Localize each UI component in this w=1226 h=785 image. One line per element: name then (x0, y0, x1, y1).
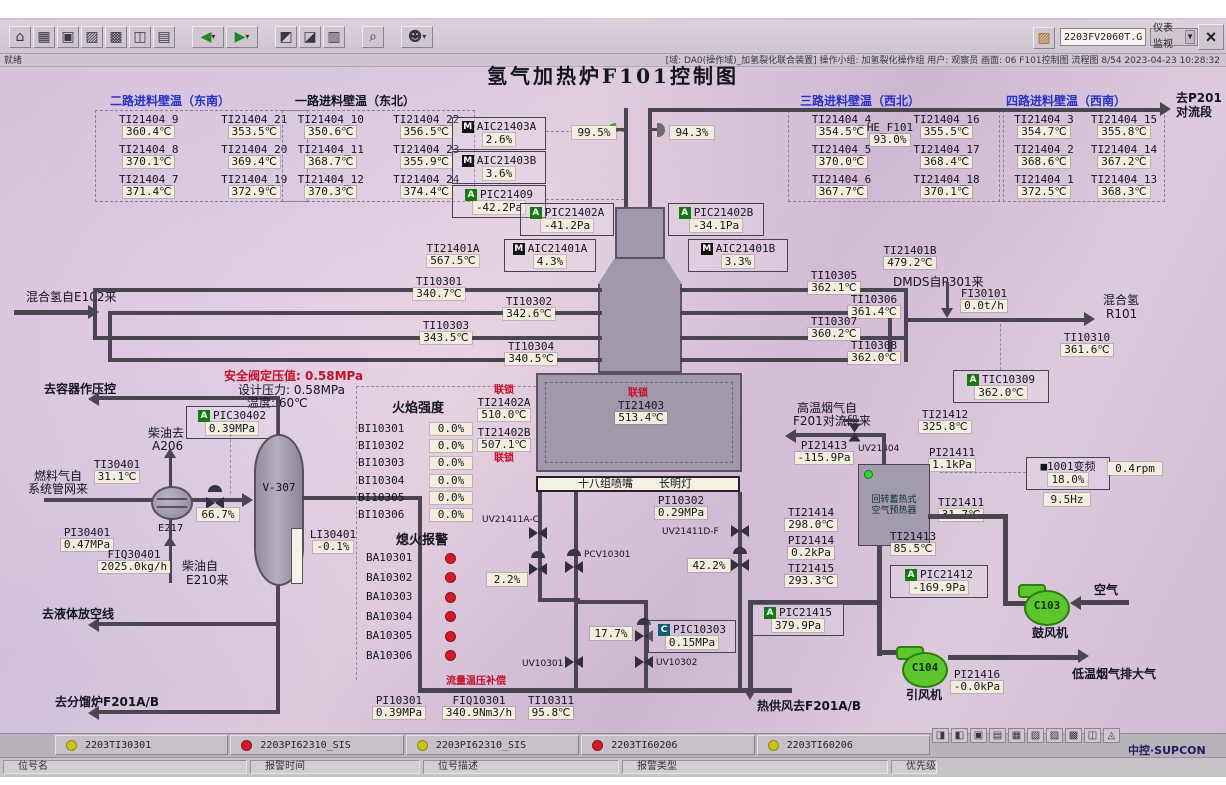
mode-badge: A (679, 207, 691, 219)
pipe (14, 310, 90, 315)
burner-groups-label: 十八组喷嘴 (578, 478, 633, 490)
tag-label: BA10305 (366, 630, 412, 642)
flame-title: 火焰强度 (392, 402, 444, 415)
value: 2025.0kg/h (98, 561, 170, 573)
value: 372.9℃ (229, 186, 280, 198)
pipe (1003, 514, 1008, 606)
value: 370.3℃ (305, 186, 356, 198)
value: 354.7℃ (1018, 126, 1069, 138)
temp-indicator[interactable]: TI21404_8370.1℃ (96, 144, 202, 168)
value: 374.4℃ (401, 186, 452, 198)
tray-button[interactable]: ▣ (970, 728, 987, 743)
value: 510.0℃ (478, 409, 529, 421)
air-label: 空气 (1094, 584, 1118, 597)
valve-bar (843, 419, 859, 422)
TI21401A-indicator[interactable]: TI21401A567.5℃ (418, 243, 488, 267)
alarm-dot (445, 553, 456, 564)
field-label: 报警时间 (250, 760, 420, 774)
valve-actuator (733, 547, 747, 554)
TI21412-indicator[interactable]: TI21412325.8℃ (914, 409, 976, 433)
temp-indicator[interactable]: TI21404_1372.5℃ (1004, 174, 1084, 198)
to-vessel-label: 去容器作压控 (44, 383, 116, 396)
vfd-speed[interactable]: 0.4rpm (1108, 462, 1162, 475)
toolbar-button[interactable]: ◀ (192, 26, 224, 48)
value: 367.7℃ (816, 186, 867, 198)
tag-label: PIC21415 (779, 606, 832, 619)
flame-indicator[interactable]: BI103060.0% (358, 509, 472, 521)
valve-position-42.2[interactable]: 42.2% (688, 559, 730, 572)
pipe (904, 318, 1086, 322)
TI21414-indicator[interactable]: TI21414298.0℃ (780, 507, 842, 531)
valve-position-2.2[interactable]: 2.2% (487, 573, 527, 586)
PCV10301-label: PCV10301 (584, 550, 631, 560)
AIC21403B-controller[interactable]: MAIC21403B3.6% (452, 151, 546, 184)
UV21411D-F-valve[interactable] (731, 522, 749, 541)
value: 293.3℃ (785, 575, 836, 587)
alarm-priority-dot (592, 740, 603, 751)
TI21401B-indicator[interactable]: TI21401B479.2℃ (875, 245, 945, 269)
pipe (680, 288, 908, 292)
interlock-label: 联锁 (628, 388, 648, 399)
flame-indicator[interactable]: BI103050.0% (358, 492, 472, 504)
pipe (418, 688, 792, 693)
value: 507.1℃ (478, 439, 529, 451)
flame-indicator[interactable]: BI103010.0% (358, 423, 472, 435)
alarm-cells: 2203TI303012203PI62310_SIS2203PI62310_SI… (55, 735, 930, 755)
PIC21402A-controller[interactable]: APIC21402A-41.2Pa (520, 203, 614, 236)
toolbar-button[interactable]: ▥ (323, 26, 345, 48)
tag-label: AIC21401B (716, 242, 776, 255)
value: 370.0℃ (816, 156, 867, 168)
tag-label: PIC21402B (694, 206, 754, 219)
E217-exchanger[interactable] (151, 486, 193, 520)
value: 0.15MPa (666, 636, 718, 649)
flow-arrow (941, 308, 953, 318)
toolbar-button[interactable]: ◪ (299, 26, 321, 48)
PIC10303-controller[interactable]: CPIC103030.15MPa (648, 620, 736, 653)
AIC21403A-controller[interactable]: MAIC21403A2.6% (452, 117, 546, 150)
fan-tag: C104 (902, 662, 948, 674)
fuel-control-valve-2[interactable] (529, 560, 547, 579)
alarm-dot (445, 650, 456, 661)
supcon-logo: 中控·SUPCON (1128, 745, 1206, 757)
mode-badge: A (465, 189, 477, 201)
tray-button[interactable]: ◨ (932, 728, 949, 743)
alarm-dot (445, 631, 456, 642)
dcs-screen: ⌂▦▣▨▩◫▤◀▶◩◪▥⌕☻ ▨ 仪表监视▼ × 就绪 [域: DA0(操作域)… (0, 0, 1226, 785)
signal-line (940, 472, 1026, 473)
field-label: 报警类型 (622, 760, 888, 774)
flameout-alarm[interactable]: BA10306 (366, 650, 462, 662)
TI21402B-indicator[interactable]: TI21402B507.1℃ (473, 427, 535, 451)
TI10308-indicator[interactable]: TI10308362.0℃ (843, 340, 905, 364)
PIC21412-controller[interactable]: APIC21412-169.9Pa (890, 565, 988, 598)
tag-label: PIC21412 (920, 568, 973, 581)
tray-button[interactable]: ▧ (1027, 728, 1044, 743)
furnace-stack (615, 207, 665, 259)
value: -34.1Pa (690, 219, 742, 232)
exchanger-line (157, 498, 187, 500)
temp-indicator[interactable]: TI21404_6367.7℃ (789, 174, 894, 198)
tag-label: PIC30402 (213, 409, 266, 422)
tag-label: AIC21401A (528, 242, 588, 255)
value: 370.1℃ (123, 156, 174, 168)
alarm-cell[interactable]: 2203TI60206 (757, 735, 930, 755)
damper-position-99[interactable]: 99.5% (572, 126, 616, 139)
TI21413-indicator[interactable]: TI2141385.5℃ (884, 531, 942, 555)
h2-outlet-label2: R101 (1106, 308, 1137, 321)
temp-indicator[interactable]: TI21404_12370.3℃ (283, 174, 379, 198)
tray-button[interactable]: ▦ (1008, 728, 1025, 743)
value: 360.4℃ (123, 126, 174, 138)
LI30401-indicator[interactable]: LI30401-0.1% (304, 529, 362, 553)
tag-label: BI10304 (358, 475, 404, 487)
valve-position-66[interactable]: 66.7% (197, 508, 239, 521)
burner-bar: 十八组喷嘴长明灯 (536, 476, 740, 492)
value: 0.0% (430, 457, 472, 469)
flameout-alarm[interactable]: BA10303 (366, 591, 462, 603)
value: 361.6℃ (1061, 344, 1112, 356)
TI21402A-indicator[interactable]: TI21402A510.0℃ (473, 397, 535, 421)
TI30401-indicator[interactable]: TI3040131.1℃ (86, 459, 148, 483)
interlock-zone (356, 386, 357, 680)
value: 325.8℃ (919, 421, 970, 433)
temp-indicator[interactable]: TI21404_7371.4℃ (96, 174, 202, 198)
mode-badge: A (530, 207, 542, 219)
vfd-label: ■1001变频 (1040, 460, 1095, 473)
TI10305-indicator[interactable]: TI10305362.1℃ (803, 270, 865, 294)
preheater-label2: 空气预热器 (871, 506, 916, 516)
value: 18.0% (1048, 473, 1087, 486)
value: 95.8℃ (529, 707, 574, 719)
value: 0.0% (430, 475, 472, 487)
temp-indicator[interactable]: TI21404_18370.1℃ (894, 174, 999, 198)
alarm-priority-dot (241, 740, 252, 751)
temp-indicator[interactable]: TI21404_15355.8℃ (1084, 114, 1164, 138)
TI10301-indicator[interactable]: TI10301340.7℃ (408, 276, 470, 300)
flow-arrow (744, 690, 756, 700)
toolbar-button[interactable]: ▩ (105, 26, 127, 48)
value: 298.0℃ (785, 519, 836, 531)
HE_F101-indicator[interactable]: HE_F10193.0% (848, 122, 932, 146)
value: 2.6% (483, 133, 516, 146)
UV10301-label: UV10301 (522, 659, 563, 669)
mode-badge: M (462, 121, 474, 133)
signal-line (230, 434, 231, 494)
pipe (882, 433, 886, 466)
table3-title: 三路进料壁温（西北） (800, 95, 920, 108)
value: 4.3% (534, 255, 567, 268)
FI30101-indicator[interactable]: FI301010.0t/h (953, 288, 1015, 312)
toolbar-button[interactable]: ▤ (153, 26, 175, 48)
alarm-cell[interactable]: 2203PI62310_SIS (406, 735, 579, 755)
pipe (538, 492, 542, 602)
page-title: 氢气加热炉F101控制图 (0, 64, 1226, 88)
mode-badge: A (764, 607, 776, 619)
pipe (793, 433, 885, 437)
alarm-tag: 2203TI60206 (787, 740, 853, 751)
toolbar-button[interactable]: ⌕ (362, 26, 384, 48)
cold-flue-label: 低温烟气排大气 (1072, 668, 1156, 681)
value: -169.9Pa (910, 581, 969, 594)
temp-indicator[interactable]: TI21404_2368.6℃ (1004, 144, 1084, 168)
flameout-alarm[interactable]: BA10301 (366, 552, 462, 564)
to-p201-label: 去P201 (1176, 92, 1222, 105)
value: 368.3℃ (1098, 186, 1149, 198)
AIC21401B-controller[interactable]: MAIC21401B3.3% (688, 239, 788, 272)
TI21403-indicator[interactable]: TI21403513.4℃ (608, 400, 674, 424)
TI10311-indicator[interactable]: TI1031195.8℃ (522, 695, 580, 719)
alarm-priority-dot (66, 740, 77, 751)
PCV10301-valve[interactable] (565, 558, 583, 577)
value: 0.0t/h (961, 300, 1007, 312)
flow-arrow (164, 448, 176, 458)
pipe (624, 108, 628, 207)
alarm-tag: 2203PI62310_SIS (436, 740, 526, 751)
mode-badge: A (198, 410, 210, 422)
toolbar-button[interactable]: ▣ (57, 26, 79, 48)
safety-setpoint-label: 安全阀定压值: 0.58MPa (224, 370, 363, 383)
tray-button[interactable]: ◫ (1084, 728, 1101, 743)
temp-indicator[interactable]: TI21404_13368.3℃ (1084, 174, 1164, 198)
mode-badge: A (967, 374, 979, 386)
flow-arrow (1070, 596, 1081, 610)
UV21411A-C-valve[interactable] (529, 524, 547, 543)
UV21411D-F-label: UV21411D-F (662, 527, 719, 537)
value: 0.0% (430, 440, 472, 452)
close-button[interactable]: × (1198, 24, 1224, 50)
pipe (98, 710, 278, 714)
value: 567.5℃ (427, 255, 478, 267)
value: 3.3% (722, 255, 755, 268)
value: 369.4℃ (229, 156, 280, 168)
temp-indicator[interactable]: TI21404_11368.7℃ (283, 144, 379, 168)
C103-blower[interactable]: C103 (1024, 584, 1072, 626)
tag-label: BI10302 (358, 440, 404, 452)
pilot-label: 长明灯 (659, 478, 692, 490)
screen-filename-input[interactable] (1060, 28, 1146, 46)
UV10302-label: UV10302 (656, 658, 697, 668)
tray-button[interactable]: ▨ (1046, 728, 1063, 743)
flame-list: BI103010.0%BI103020.0%BI103030.0%BI10304… (358, 423, 472, 521)
alarm-tag: 2203TI30301 (85, 740, 151, 751)
value: 340.9Nm3/h (443, 707, 515, 719)
value: -42.2Pa (473, 201, 525, 214)
value: 1.1kPa (929, 459, 975, 471)
field-label: 优先级 (891, 760, 937, 774)
value: 0.29MPa (655, 507, 707, 519)
PI21414-indicator[interactable]: PI214140.2kPa (782, 535, 840, 559)
toolbar-button[interactable]: ◫ (129, 26, 151, 48)
compensation-label: 流量温压补偿 (446, 676, 506, 687)
c103-name-label: 鼓风机 (1032, 627, 1068, 640)
value: 367.2℃ (1098, 156, 1149, 168)
PIC30402-controller[interactable]: APIC304020.39MPa (186, 406, 278, 439)
furnace-convection (598, 284, 682, 373)
value: 343.5℃ (420, 332, 471, 344)
PI10302-indicator[interactable]: PI103020.29MPa (648, 495, 714, 519)
tray-button[interactable]: ▩ (1065, 728, 1082, 743)
value: 350.6℃ (305, 126, 356, 138)
flame-indicator[interactable]: BI103040.0% (358, 475, 472, 487)
pipe (578, 600, 648, 604)
value: 0.39MPa (373, 707, 425, 719)
TI10307-indicator[interactable]: TI10307360.2℃ (803, 316, 865, 340)
value: 368.6℃ (1018, 156, 1069, 168)
valve-position-17.7[interactable]: 17.7% (590, 627, 632, 640)
snapshot-icon[interactable]: ▨ (1033, 27, 1055, 49)
signal-line (1000, 324, 1001, 370)
C104-fan[interactable]: C104 (902, 646, 950, 688)
value: 0.0% (430, 509, 472, 521)
alarm-priority-dot (768, 740, 779, 751)
hot-air-label: 热供风去F201A/B (757, 700, 861, 713)
TIC10309-controller[interactable]: ATIC10309362.0℃ (953, 370, 1049, 403)
pipe (948, 655, 1080, 660)
fuel-gas-label2: 系统管网来 (28, 483, 88, 496)
value: 379.9Pa (772, 619, 824, 632)
FIQ30401-indicator[interactable]: FIQ304012025.0kg/h (90, 549, 178, 573)
flameout-alarm[interactable]: BA10305 (366, 630, 462, 642)
diesel-from-label: 柴油自 (182, 560, 218, 573)
tag-label: PIC21402A (545, 206, 605, 219)
pipe (1081, 600, 1129, 605)
mode-badge: C (658, 624, 670, 636)
TI21415-indicator[interactable]: TI21415293.3℃ (780, 563, 842, 587)
FIQ10301-indicator[interactable]: FIQ10301340.9Nm3/h (438, 695, 520, 719)
PI21416-indicator[interactable]: PI21416-0.0kPa (946, 669, 1008, 693)
UV10301-valve[interactable] (565, 653, 583, 672)
temp-indicator[interactable]: TI21404_3354.7℃ (1004, 114, 1084, 138)
temp-indicator[interactable]: TI21404_14367.2℃ (1084, 144, 1164, 168)
tag-label: BA10306 (366, 650, 412, 662)
flame-indicator[interactable]: BI103020.0% (358, 440, 472, 452)
TI10302-indicator[interactable]: TI10302342.6℃ (498, 296, 560, 320)
PI21413-indicator[interactable]: PI21413-115.9Pa (788, 440, 860, 464)
value: 0.0% (430, 492, 472, 504)
pipe (93, 288, 97, 340)
tag-label: AIC21403B (477, 154, 537, 167)
flow-arrow (88, 392, 99, 406)
TI10310-indicator[interactable]: TI10310361.6℃ (1056, 332, 1118, 356)
AIC21401A-controller[interactable]: MAIC21401A4.3% (504, 239, 596, 272)
tag-label: BA10302 (366, 572, 412, 584)
value: 355.8℃ (1098, 126, 1149, 138)
PI21411-indicator[interactable]: PI214111.1kPa (923, 447, 981, 471)
UV21411A-C-label: UV21411A-C (482, 515, 539, 525)
vfd-1001-controller[interactable]: ■1001变频18.0% (1026, 457, 1110, 490)
tag-label: BI10303 (358, 457, 404, 469)
to-f201-label: 去分馏炉F201A/B (55, 696, 159, 709)
toolbar-button[interactable]: ▶ (226, 26, 258, 48)
diesel-from-label2: E210来 (186, 574, 229, 587)
toolbar-button[interactable]: ◩ (275, 26, 297, 48)
flame-indicator[interactable]: BI103030.0% (358, 457, 472, 469)
value: 362.0℃ (975, 386, 1026, 399)
value: -115.9Pa (795, 452, 854, 464)
toolbar-button[interactable]: ▦ (33, 26, 55, 48)
pilot-control-valve[interactable] (731, 556, 749, 575)
flow-arrow (1084, 312, 1095, 326)
value: 340.7℃ (413, 288, 464, 300)
alarm-tag: 2203PI62310_SIS (260, 740, 350, 751)
value: 31.1℃ (95, 471, 140, 483)
temp-indicator[interactable]: TI21404_17368.4℃ (894, 144, 999, 168)
UV21404-valve[interactable] (845, 424, 864, 442)
UV10302-valve[interactable] (635, 653, 653, 672)
c104-name-label: 引风机 (906, 689, 942, 702)
view-mode-select[interactable]: 仪表监视▼ (1150, 28, 1198, 46)
preheater-label: 回转蓄热式 (871, 495, 916, 505)
blower-tag: C103 (1024, 600, 1070, 612)
tray-button[interactable]: ◧ (951, 728, 968, 743)
value: 479.2℃ (884, 257, 935, 269)
interlock-label: 联锁 (494, 385, 514, 396)
PIC21402B-controller[interactable]: APIC21402B-34.1Pa (668, 203, 764, 236)
flameout-alarm[interactable]: BA10304 (366, 611, 462, 623)
table4-title: 四路进料壁温（西南） (1006, 95, 1126, 108)
temp-indicator[interactable]: TI21404_5370.0℃ (789, 144, 894, 168)
tag-label: BA10303 (366, 591, 412, 603)
field-label: 位号名 (3, 760, 247, 774)
flameout-alarm[interactable]: BA10302 (366, 572, 462, 584)
TI10304-indicator[interactable]: TI10304340.5℃ (500, 341, 562, 365)
alarm-cell[interactable]: 2203TI60206 (581, 735, 754, 755)
tag-label: PIC10303 (673, 623, 726, 636)
valve-stem (616, 128, 624, 131)
temp-indicator[interactable]: TI21404_9360.4℃ (96, 114, 202, 138)
pipe (877, 546, 882, 656)
alarm-dot (445, 611, 456, 622)
value: 93.0% (870, 134, 909, 146)
alarm-cell[interactable]: 2203PI62310_SIS (230, 735, 403, 755)
flow-arrow (1160, 102, 1171, 116)
view-mode-label: 仪表监视 (1153, 21, 1182, 53)
tray-button[interactable]: ◬ (1103, 728, 1120, 743)
tray-button[interactable]: ▤ (989, 728, 1006, 743)
h2-inlet-label: 混合氢自E102来 (26, 291, 117, 304)
toolbar-buttons: ⌂▦▣▨▩◫▤◀▶◩◪▥⌕☻ (8, 26, 434, 48)
PI10301-indicator[interactable]: PI103010.39MPa (368, 695, 430, 719)
table2-title: 二路进料壁温（东南） (110, 95, 230, 108)
mode-badge: M (462, 155, 474, 167)
value: 85.5℃ (891, 543, 936, 555)
toolbar-button[interactable]: ⌂ (9, 26, 31, 48)
temp-indicator[interactable]: TI21404_10350.6℃ (283, 114, 379, 138)
pipe (1003, 601, 1026, 606)
pipe (652, 108, 1162, 112)
value: 3.6% (483, 167, 516, 180)
toolbar-button[interactable]: ▨ (81, 26, 103, 48)
chevron-down-icon[interactable]: ▼ (1185, 30, 1195, 44)
flow-arrow (242, 493, 253, 507)
valve-actuator (567, 549, 581, 556)
TI10303-indicator[interactable]: TI10303343.5℃ (415, 320, 477, 344)
value: 355.9℃ (401, 156, 452, 168)
h2-outlet-label: 混合氢 (1103, 294, 1139, 307)
pipe (44, 498, 156, 502)
damper-position-94[interactable]: 94.3% (670, 126, 714, 139)
PIC21415-controller[interactable]: APIC21415379.9Pa (752, 603, 844, 636)
alarm-cell[interactable]: 2203TI30301 (55, 735, 228, 755)
value: 513.4℃ (615, 412, 666, 424)
valve-actuator (208, 485, 222, 492)
value: 372.5℃ (1018, 186, 1069, 198)
value: -41.2Pa (541, 219, 593, 232)
vfd-frequency[interactable]: 9.5Hz (1044, 493, 1090, 506)
flameout-list: BA10301BA10302BA10303BA10304BA10305BA103… (366, 552, 462, 662)
toolbar-button[interactable]: ☻ (401, 26, 433, 48)
